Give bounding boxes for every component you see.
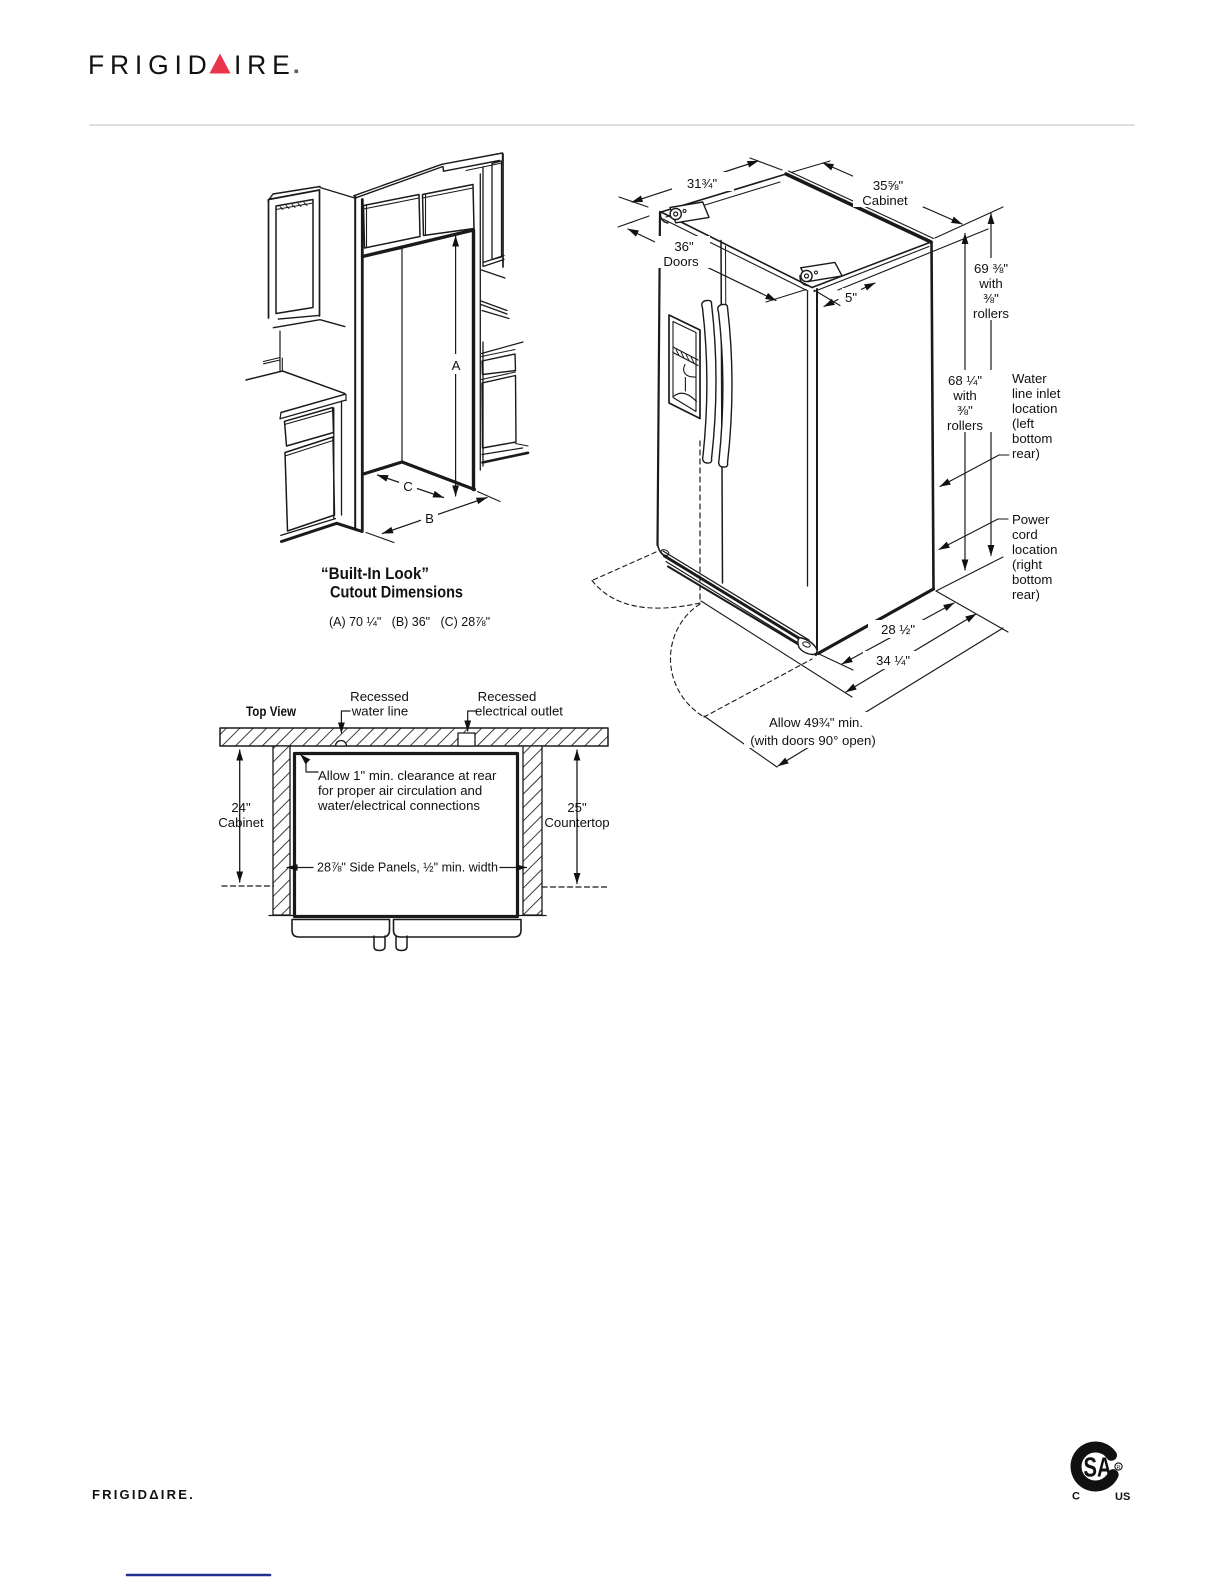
svg-text:C: C [403, 479, 413, 494]
svg-text:5": 5" [845, 290, 857, 305]
svg-text:electrical outlet: electrical outlet [475, 704, 563, 719]
svg-text:“Built-In Look”: “Built-In Look” [321, 565, 429, 583]
svg-text:line inlet: line inlet [1012, 386, 1061, 401]
svg-text:25": 25" [567, 800, 587, 815]
svg-text:Recessed: Recessed [478, 689, 537, 704]
svg-text:Water: Water [1012, 371, 1047, 386]
svg-text:for proper air circulation and: for proper air circulation and [318, 783, 482, 798]
svg-text:28 ½": 28 ½" [881, 622, 915, 637]
svg-text:(left: (left [1012, 416, 1034, 431]
svg-text:IRE: IRE [234, 50, 296, 80]
svg-text:24": 24" [231, 800, 251, 815]
svg-text:SA: SA [1084, 1452, 1112, 1483]
svg-text:⅜": ⅜" [983, 291, 999, 306]
svg-text:Doors: Doors [663, 254, 699, 269]
svg-text:Recessed: Recessed [350, 689, 409, 704]
svg-text:location: location [1012, 542, 1057, 557]
svg-text:28⅞" Side Panels, ½" min. widt: 28⅞" Side Panels, ½" min. width [317, 860, 498, 875]
svg-text:R: R [1117, 1465, 1121, 1471]
svg-text:69 ⅜": 69 ⅜" [974, 261, 1008, 276]
svg-text:Allow 49¾" min.: Allow 49¾" min. [769, 715, 863, 730]
svg-text:bottom: bottom [1012, 572, 1052, 587]
svg-text:35⅝": 35⅝" [873, 178, 904, 193]
svg-text:⅜": ⅜" [957, 403, 973, 418]
svg-text:34 ¼": 34 ¼" [876, 653, 910, 668]
svg-text:bottom: bottom [1012, 431, 1052, 446]
svg-text:with: with [978, 276, 1002, 291]
svg-text:US: US [1115, 1491, 1130, 1503]
svg-text:water/electrical connections: water/electrical connections [317, 798, 480, 813]
svg-text:B: B [425, 511, 434, 526]
svg-text:Cabinet: Cabinet [218, 815, 264, 830]
svg-text:with: with [952, 388, 976, 403]
svg-text:Power: Power [1012, 512, 1050, 527]
svg-text:FRIGIDΔIRE.: FRIGIDΔIRE. [92, 1487, 195, 1502]
svg-text:(A) 70 ¼" (B) 36" (C) 28⅞": (A) 70 ¼" (B) 36" (C) 28⅞" [329, 614, 490, 629]
svg-text:rollers: rollers [947, 418, 983, 433]
svg-text:location: location [1012, 401, 1057, 416]
svg-text:Countertop: Countertop [544, 815, 609, 830]
svg-text:Top View: Top View [246, 704, 296, 719]
svg-text:water line: water line [351, 704, 408, 719]
svg-text:rear): rear) [1012, 446, 1040, 461]
svg-text:FRIGID: FRIGID [88, 50, 213, 80]
svg-text:Allow 1" min. clearance at rea: Allow 1" min. clearance at rear [318, 768, 497, 783]
svg-text:31¾": 31¾" [687, 176, 718, 191]
svg-text:68 ¼": 68 ¼" [948, 373, 982, 388]
svg-text:Cabinet: Cabinet [862, 193, 908, 208]
svg-text:cord: cord [1012, 527, 1038, 542]
svg-text:36": 36" [674, 239, 694, 254]
svg-text:(right: (right [1012, 557, 1042, 572]
svg-text:C: C [1072, 1491, 1080, 1503]
svg-text:rollers: rollers [973, 306, 1009, 321]
svg-text:Cutout Dimensions: Cutout Dimensions [330, 584, 463, 602]
svg-text:(with doors 90° open): (with doors 90° open) [750, 733, 876, 748]
svg-text:A: A [452, 358, 461, 373]
svg-text:rear): rear) [1012, 587, 1040, 602]
